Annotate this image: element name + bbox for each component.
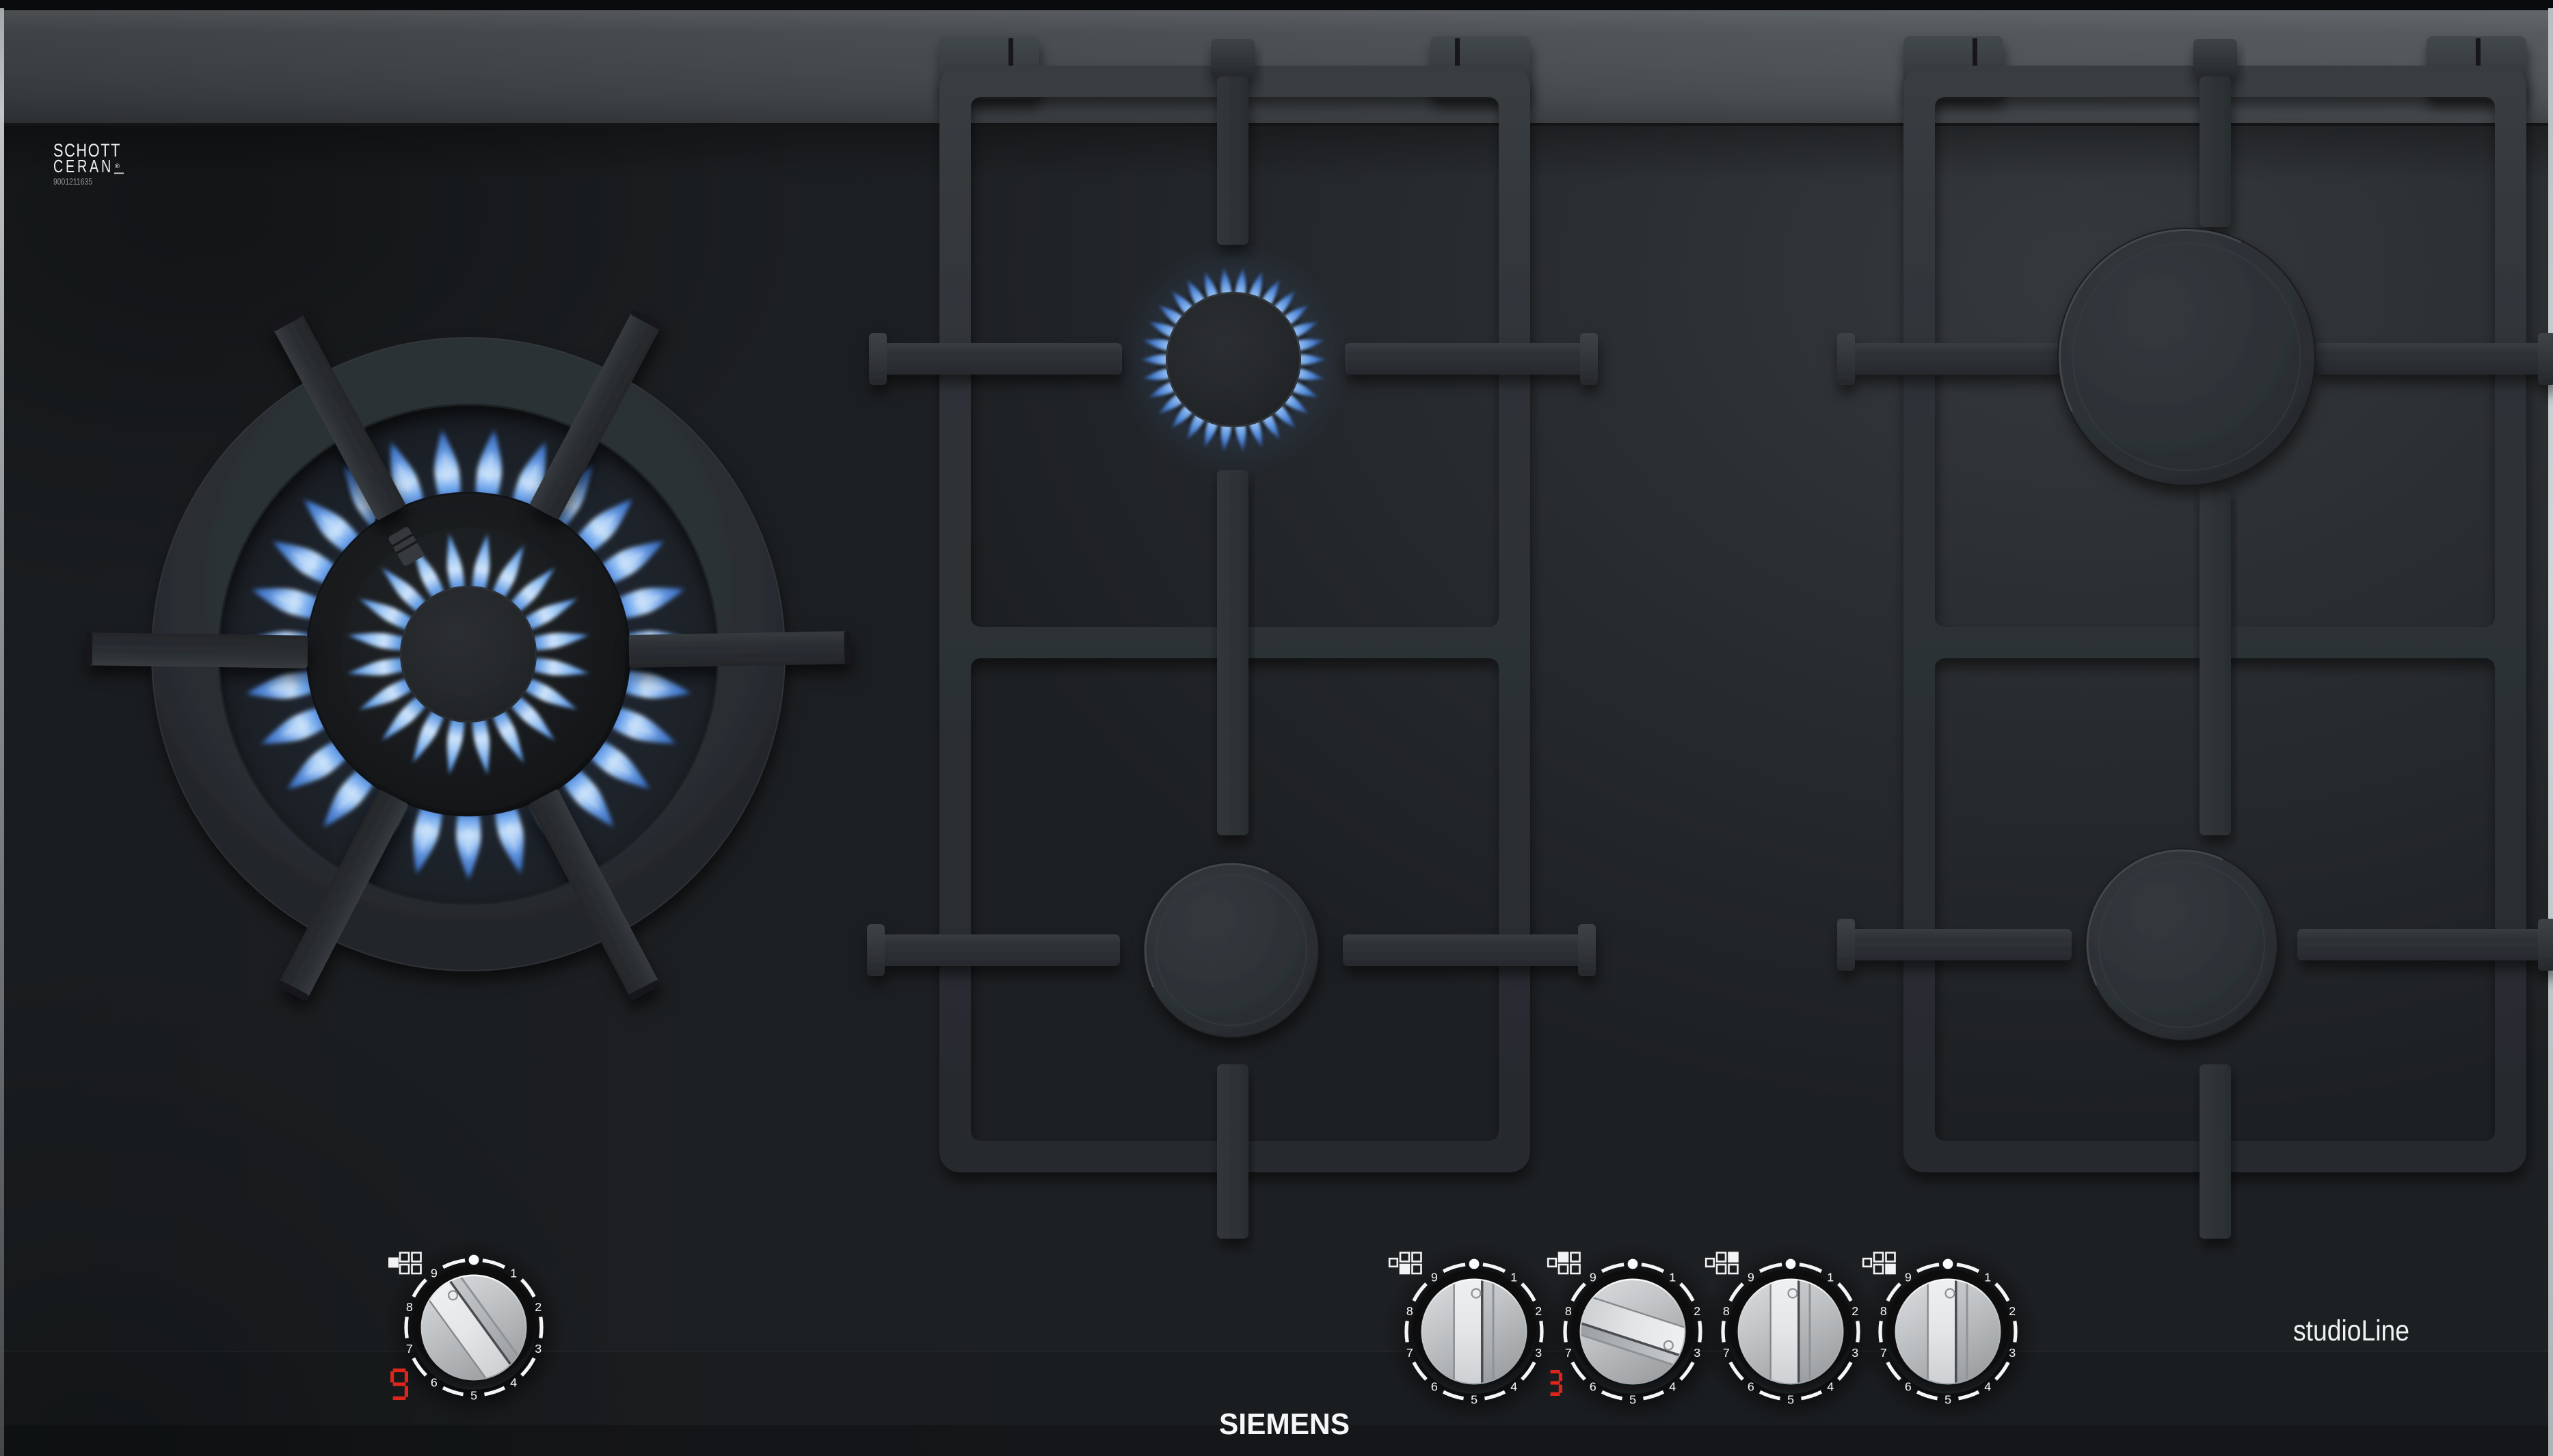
svg-text:9001211635: 9001211635: [53, 177, 92, 187]
svg-text:®: ®: [115, 163, 120, 170]
svg-text:SIEMENS: SIEMENS: [1219, 1407, 1350, 1441]
svg-text:studioLine: studioLine: [2293, 1315, 2409, 1347]
svg-text:CERAN: CERAN: [53, 156, 113, 176]
